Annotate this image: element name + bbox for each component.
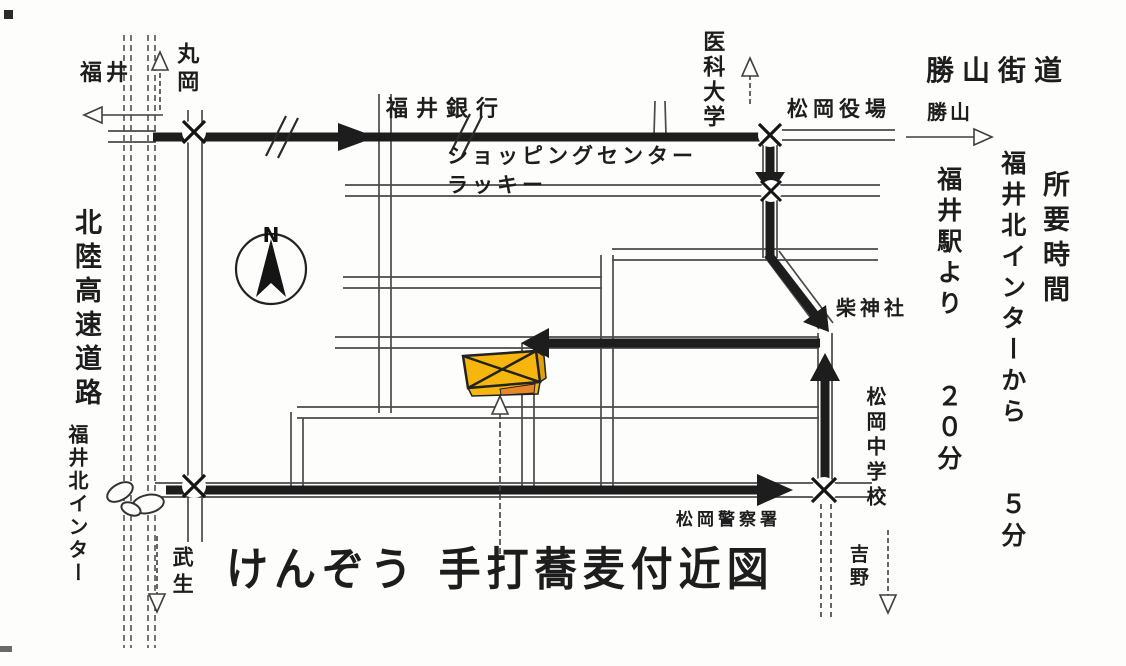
- label-fukui-kita-ic: 福井北インター: [64, 424, 87, 585]
- arrow-to-katsuyama: [906, 129, 992, 145]
- label-fukui: 福井: [80, 60, 132, 85]
- info-required-time: 所要時間: [1038, 170, 1069, 310]
- restaurant-building-icon: [463, 351, 546, 396]
- label-takefu: 武生: [170, 546, 194, 600]
- road-horizontal-3: [612, 249, 878, 260]
- road-vertical-1: [379, 94, 391, 413]
- label-shopping-center: ショッピングセンター: [447, 144, 697, 168]
- label-lucky: ラッキー: [447, 173, 547, 197]
- road-stub-top: [654, 101, 666, 135]
- route-arrow-east-bottom: [757, 474, 793, 506]
- arrow-building-pointer: [492, 396, 508, 554]
- interchange-icon: [104, 478, 166, 518]
- label-katsuyama: 勝山: [927, 102, 973, 125]
- info-from-interchange: 福井北インターから ５分: [996, 150, 1025, 553]
- crossing-icon: [758, 123, 782, 147]
- label-hokuriku-expressway: 北陸高速道路: [70, 208, 101, 412]
- label-ika-daigaku: 医科大学: [700, 30, 725, 130]
- map-canvas: N 福井 丸岡 福井銀行 ショッピングセンター ラッキー 医科大学 松岡役場 勝…: [0, 0, 1126, 666]
- scan-mark: [0, 646, 12, 652]
- route-arrow-east-top: [338, 123, 376, 151]
- label-maruoka: 丸岡: [174, 42, 199, 98]
- road-horizontal-2: [345, 185, 880, 196]
- label-matsuoka-jhs: 松岡中学校: [862, 386, 885, 511]
- road-hokuriku-expressway: [124, 35, 155, 648]
- compass-icon: N: [236, 223, 306, 304]
- label-yoshino: 吉野: [846, 544, 868, 590]
- label-katsuyama-kaido: 勝山街道: [926, 56, 1070, 88]
- arrow-to-ika-daigaku: [742, 58, 758, 104]
- label-shiba-jinja: 柴神社: [836, 298, 908, 321]
- road-vertical-yoshino-dashed: [821, 495, 831, 620]
- crossing-icon: [760, 180, 782, 202]
- crossing-icon: [182, 474, 206, 498]
- label-matsuoka-yakuba: 松岡役場: [787, 97, 891, 121]
- label-fukui-bank: 福井銀行: [386, 96, 506, 121]
- route-arrowheads: [338, 123, 840, 506]
- scan-mark: [4, 10, 13, 19]
- info-from-station: 福井駅より ２０分: [932, 166, 961, 476]
- crossing-icon: [811, 477, 837, 503]
- crossing-icon: [182, 120, 206, 144]
- arrow-to-yoshino: [880, 530, 896, 613]
- road-horizontal-4: [343, 277, 602, 288]
- road-horizontal-6: [291, 407, 819, 486]
- compass-north-label: N: [263, 223, 280, 247]
- arrow-to-takefu: [149, 536, 165, 612]
- route-arrow-north: [810, 353, 840, 381]
- label-matsuoka-police: 松岡警察署: [676, 510, 781, 530]
- map-title: けんぞう 手打蕎麦付近図: [226, 544, 775, 596]
- road-vertical-3: [601, 255, 613, 486]
